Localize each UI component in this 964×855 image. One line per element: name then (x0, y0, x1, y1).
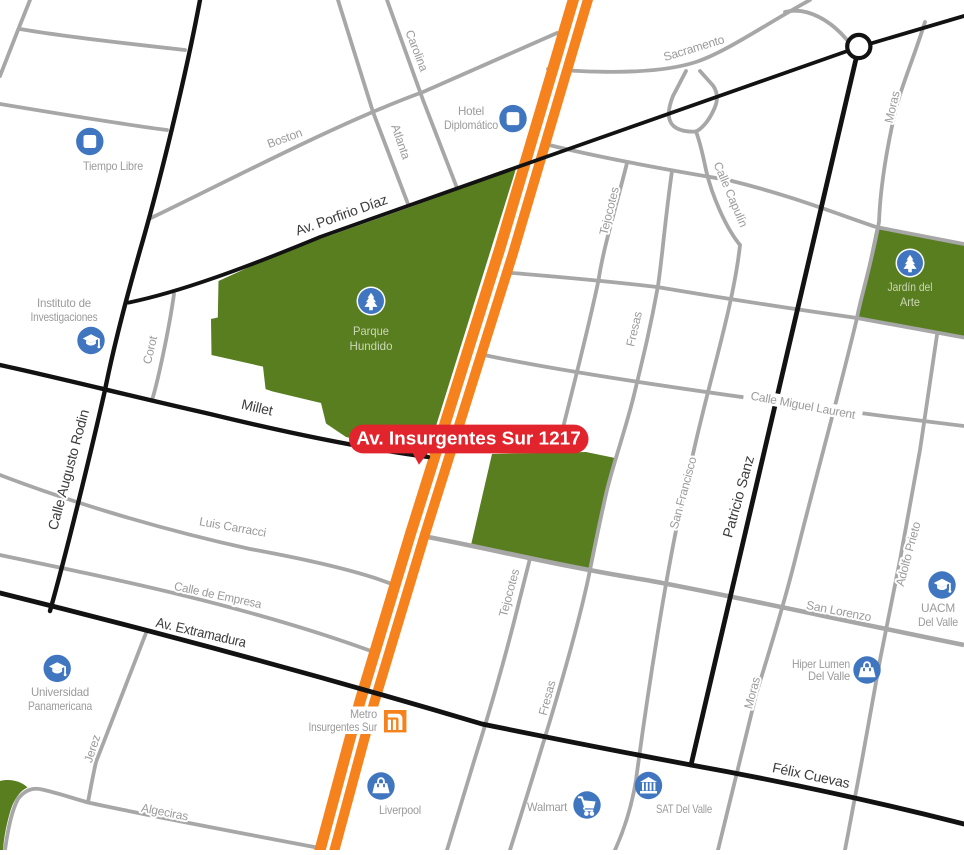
svg-text:Diplomático: Diplomático (444, 118, 499, 132)
svg-text:Del Valle: Del Valle (918, 615, 959, 629)
svg-text:Instituto de: Instituto de (37, 296, 92, 310)
svg-text:SAT Del Valle: SAT Del Valle (656, 802, 713, 816)
svg-text:Insurgentes Sur: Insurgentes Sur (309, 720, 378, 734)
svg-text:Del Valle: Del Valle (808, 669, 851, 683)
svg-text:Panamericana: Panamericana (28, 699, 93, 713)
svg-text:Jardín del: Jardín del (888, 280, 933, 294)
svg-text:Liverpool: Liverpool (379, 803, 421, 817)
svg-text:Arte: Arte (900, 295, 920, 309)
svg-text:Hotel: Hotel (458, 104, 484, 118)
svg-text:Av. Insurgentes Sur 1217: Av. Insurgentes Sur 1217 (356, 429, 581, 449)
svg-text:Tiempo Libre: Tiempo Libre (83, 159, 144, 173)
svg-text:Metro: Metro (350, 707, 378, 721)
svg-text:UACM: UACM (921, 601, 955, 615)
svg-text:Hundido: Hundido (350, 339, 393, 353)
svg-text:Parque: Parque (353, 324, 389, 338)
svg-text:Universidad: Universidad (31, 685, 89, 699)
svg-text:Investigaciones: Investigaciones (31, 310, 98, 324)
svg-text:Walmart: Walmart (527, 800, 568, 814)
